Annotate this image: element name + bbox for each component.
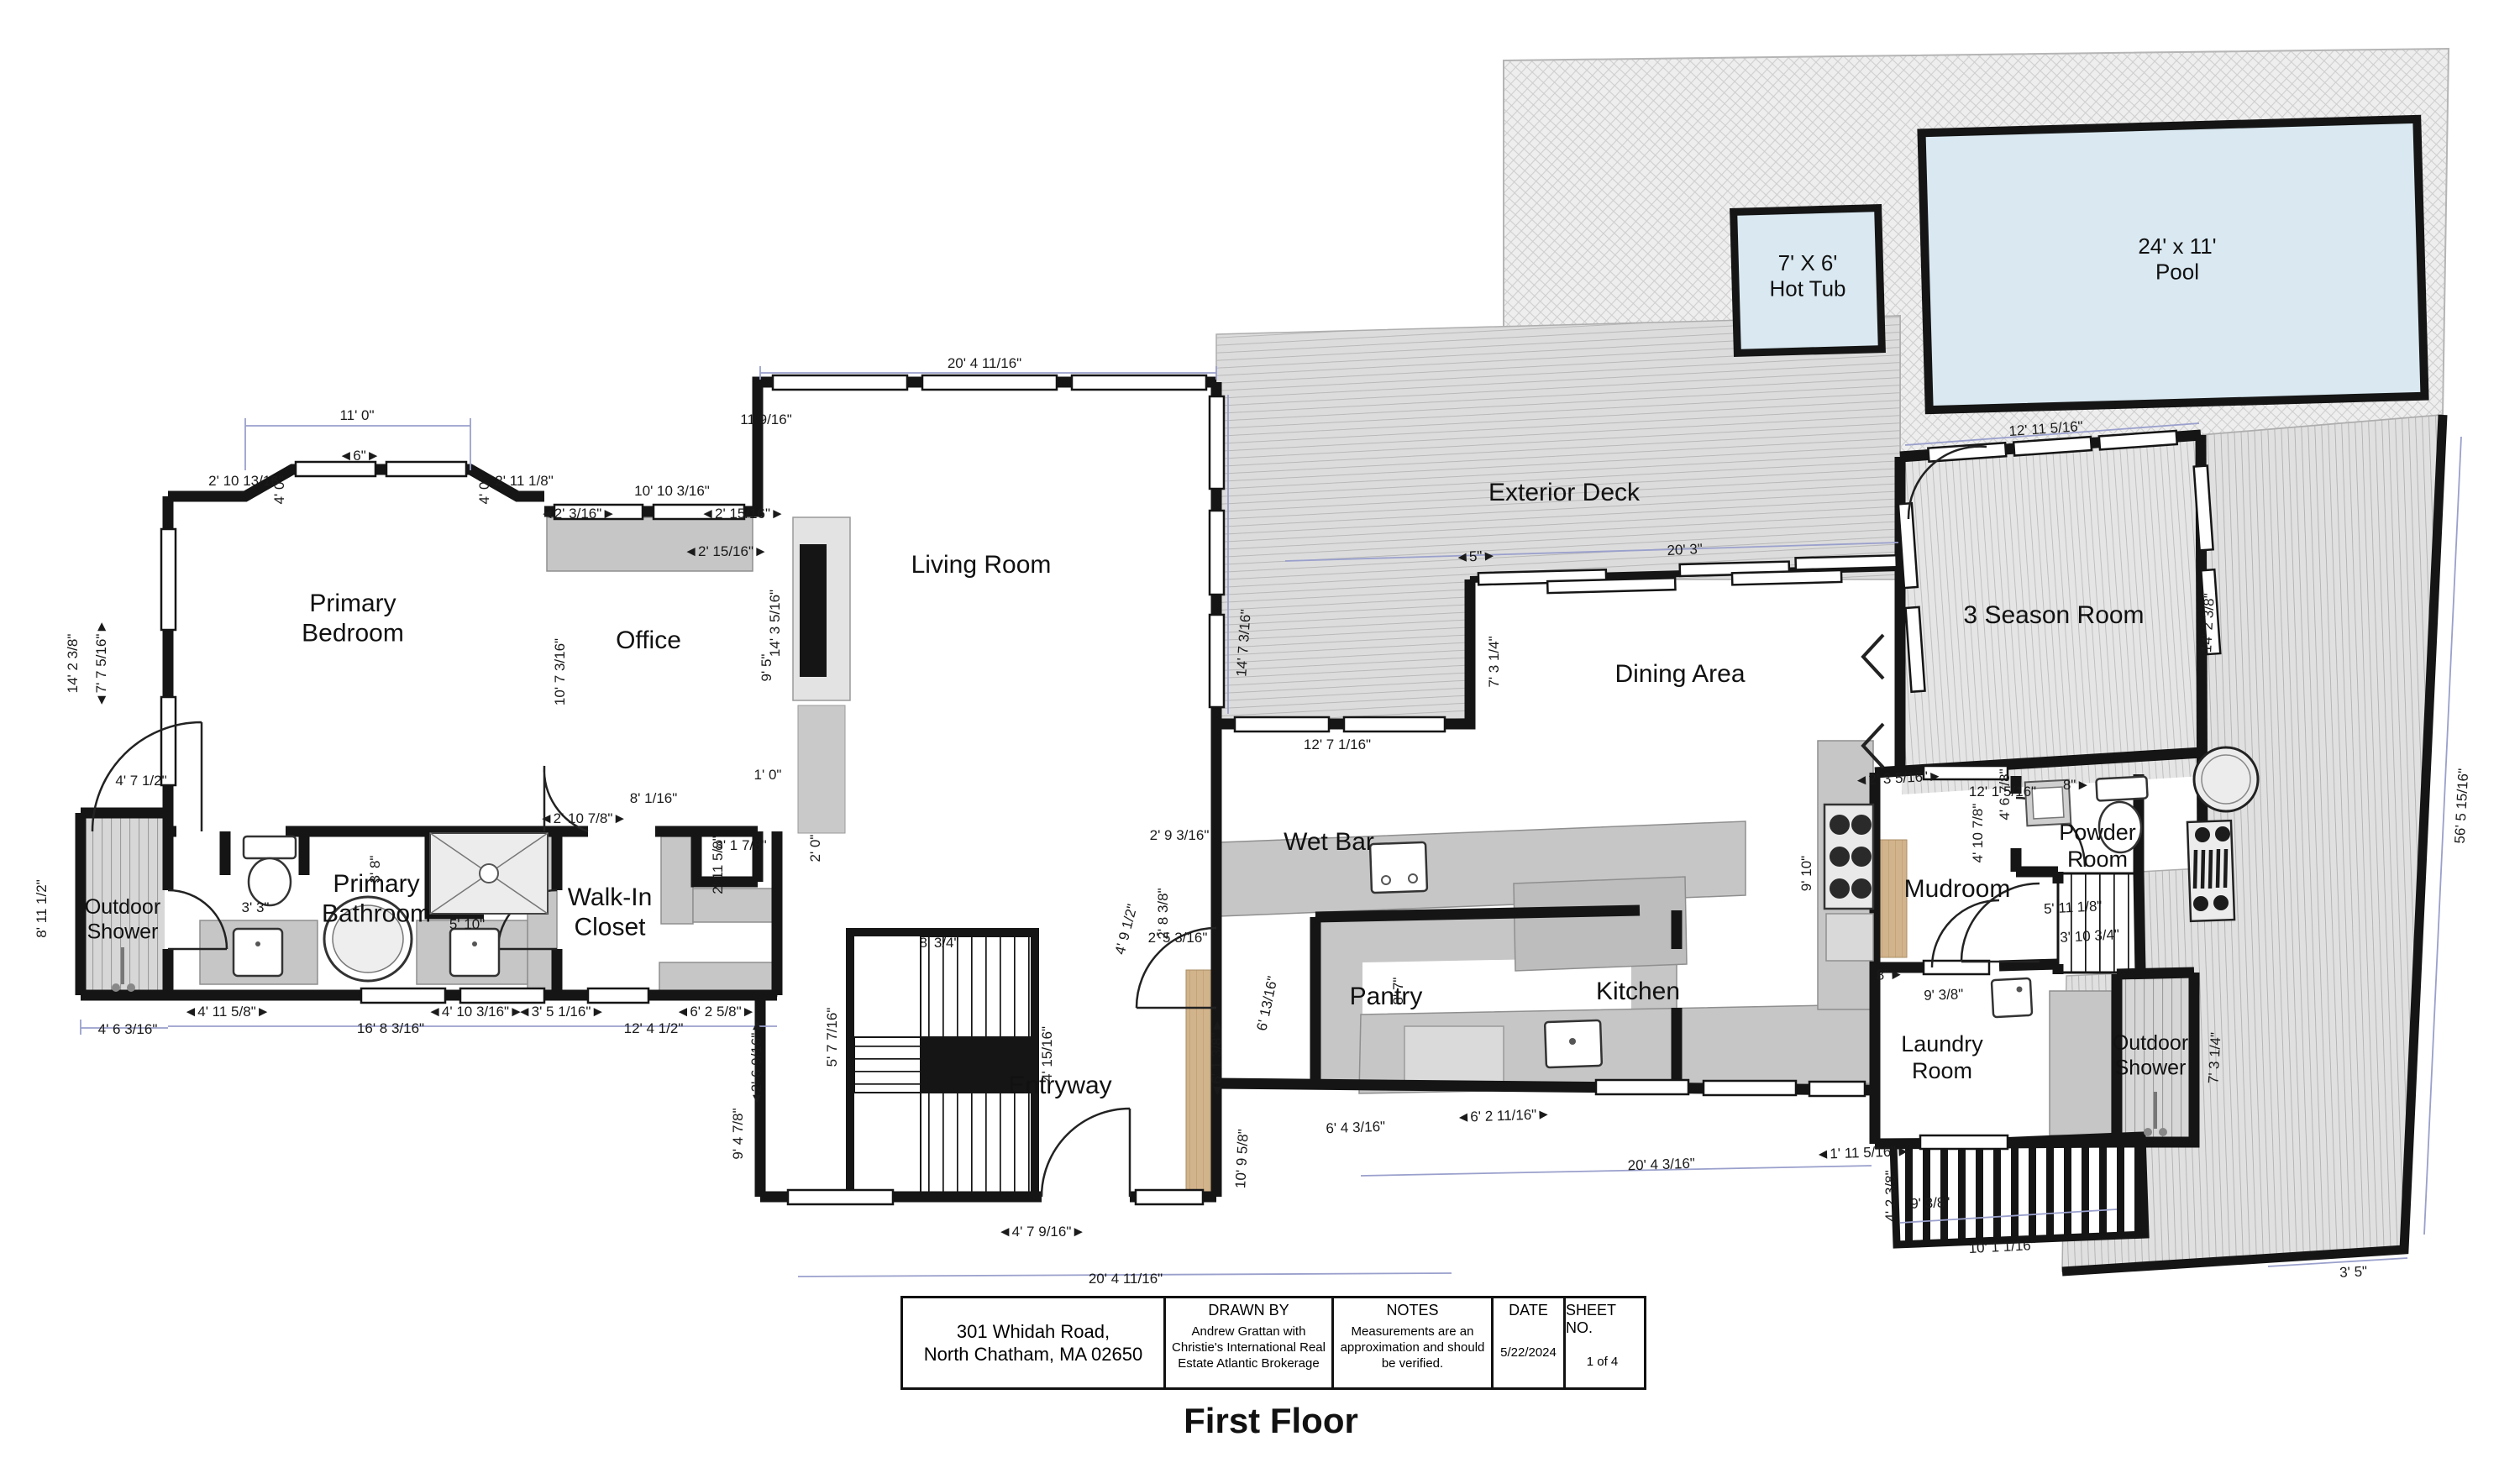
dimension-label: ◄2' 15/16"► bbox=[684, 543, 768, 559]
dimension-label: 56' 5 15/16" bbox=[2452, 768, 2472, 844]
dimension-label: 4' 7 1/2" bbox=[115, 773, 166, 789]
mudroom-bench bbox=[1878, 840, 1907, 957]
title-block-date: DATE 5/22/2024 bbox=[1491, 1298, 1563, 1387]
room-label: OutdoorShower bbox=[2113, 1031, 2188, 1080]
room-label: Walk-InCloset bbox=[568, 883, 653, 941]
dimension-label: 12' 7 1/16" bbox=[1304, 737, 1371, 752]
kitchen-sink bbox=[1545, 1020, 1602, 1067]
dimension-label: ◄4' 10 3/16"► bbox=[428, 1004, 523, 1020]
notes-text: Measurements are an approximation and sh… bbox=[1334, 1319, 1491, 1387]
dimension-label: 4' 2 3/8" bbox=[1882, 1170, 1898, 1221]
room-label: PowderRoom bbox=[2059, 820, 2136, 872]
dimension-label: 10' 7 3/16" bbox=[552, 638, 568, 705]
dimension-label: 9' 3/8" bbox=[1924, 986, 1964, 1004]
dimension-label: 9' 4 7/8" bbox=[730, 1108, 746, 1159]
floor-plan-canvas: PrimaryBedroomOfficeLiving RoomExterior … bbox=[0, 0, 2520, 1464]
date-header: DATE bbox=[1509, 1298, 1548, 1319]
floor-title: First Floor bbox=[900, 1401, 1641, 1441]
dimension-label: 20' 4 11/16" bbox=[1089, 1271, 1163, 1287]
dimension-label: 20' 4 11/16" bbox=[948, 355, 1021, 371]
title-block: 301 Whidah Road, North Chatham, MA 02650… bbox=[900, 1296, 1646, 1390]
chimney bbox=[798, 705, 845, 833]
dimension-label: ◄4' 7 9/16"► bbox=[998, 1224, 1085, 1240]
dimension-label: 2' 5 3/16" bbox=[1148, 930, 1208, 946]
dimension-label: 2' 9 3/16" bbox=[1150, 827, 1210, 843]
floor-plan-page: PrimaryBedroomOfficeLiving RoomExterior … bbox=[0, 0, 2520, 1464]
entry-staircase bbox=[850, 932, 1035, 1198]
notes-header: NOTES bbox=[1386, 1298, 1438, 1319]
title-block-notes: NOTES Measurements are an approximation … bbox=[1331, 1298, 1491, 1387]
dimension-label: ◄3' 5 1/16"► bbox=[517, 1004, 605, 1020]
room-label: 7' X 6'Hot Tub bbox=[1769, 250, 1845, 301]
dimension-label: 10' 1 1/16" bbox=[1968, 1237, 2036, 1256]
kitchen-range bbox=[1824, 805, 1873, 961]
sheet-text: 1 of 4 bbox=[1583, 1337, 1622, 1387]
fireplace-firebox bbox=[800, 544, 827, 677]
dimension-label: 4' 9 1/2" bbox=[1112, 903, 1141, 957]
dimension-label: 20' 3" bbox=[1667, 541, 1703, 558]
date-text: 5/22/2024 bbox=[1497, 1319, 1560, 1387]
dimension-label: ◄6' 1 3/8"► bbox=[1209, 1019, 1225, 1098]
dimension-label: 3' 3" bbox=[242, 899, 270, 915]
address-text: 301 Whidah Road, North Chatham, MA 02650 bbox=[924, 1320, 1142, 1366]
dimension-label: 4' 6 3/16" bbox=[98, 1021, 158, 1037]
dimension-label: 8' 3/4" bbox=[919, 935, 958, 951]
entry-door bbox=[1042, 1109, 1130, 1197]
dimension-label: 8"► bbox=[2063, 777, 2090, 793]
dimension-label: 14' 2 3/8" bbox=[65, 634, 81, 694]
dimension-label: 2' 10 13/16" bbox=[208, 473, 284, 489]
exterior-deck bbox=[1216, 316, 1900, 724]
dimension-label: ◄2' 6 9/16"► bbox=[748, 1019, 764, 1106]
closet-shelf-1 bbox=[661, 836, 693, 924]
dimension-label: 20' 4 3/16" bbox=[1627, 1156, 1695, 1174]
dimension-label: 10' 9 5/8" bbox=[1232, 1129, 1252, 1189]
room-label: 3 Season Room bbox=[1963, 601, 2144, 629]
dimension-label: ◄4' 11 5/8"► bbox=[183, 1004, 270, 1020]
dimension-label: 10' 10 3/16" bbox=[634, 483, 710, 499]
drawn-by-text: Andrew Grattan with Christie's Internati… bbox=[1166, 1319, 1331, 1387]
dimension-label: 11 9/16" bbox=[740, 412, 792, 427]
room-label: Kitchen bbox=[1596, 978, 1680, 1005]
dimension-label: 3' 10 3/4" bbox=[2060, 926, 2120, 946]
dimension-label: 14' 2 3/8" bbox=[2198, 593, 2218, 653]
dimension-label: 16' 8 3/16" bbox=[357, 1020, 424, 1036]
dimension-label: 9' 3/8" bbox=[1910, 1194, 1950, 1212]
dimension-label: ◄6' 2 11/16"► bbox=[1456, 1106, 1551, 1125]
title-block-drawn-by: DRAWN BY Andrew Grattan with Christie's … bbox=[1163, 1298, 1331, 1387]
dimension-label: 8"► bbox=[1876, 966, 1903, 983]
room-label: OutdoorShower bbox=[85, 895, 160, 944]
dimension-label: ◄2' 15/16"► bbox=[701, 506, 785, 522]
deck-rail-stairs bbox=[1893, 1135, 2145, 1245]
dimension-label: 12' 1 5/16" bbox=[1969, 784, 2036, 800]
dimension-label: 8' 1/16" bbox=[630, 790, 678, 806]
room-label: Office bbox=[616, 627, 681, 654]
dimension-label: 2' 11 1/8" bbox=[495, 473, 553, 489]
dimension-label: 7' 3 1/4" bbox=[2205, 1032, 2223, 1084]
room-label: PrimaryBedroom bbox=[302, 590, 404, 647]
sheet-header: SHEET NO. bbox=[1566, 1298, 1639, 1337]
dimension-label: 9' 10" bbox=[1798, 856, 1814, 891]
room-label: Mudroom bbox=[1904, 875, 2011, 903]
wet-bar-sink bbox=[1370, 842, 1427, 893]
dimension-label: 8' 7" bbox=[1390, 978, 1406, 1005]
dimension-label: 6' 13/16" bbox=[1253, 975, 1280, 1033]
title-block-sheet: SHEET NO. 1 of 4 bbox=[1563, 1298, 1639, 1387]
closet-shelf-2 bbox=[693, 889, 777, 922]
kitchen-island bbox=[1514, 877, 1687, 971]
dimension-label: 5' 10" bbox=[449, 916, 485, 932]
dimension-label: 14' 3 5/16" bbox=[767, 590, 783, 657]
drawn-by-header: DRAWN BY bbox=[1208, 1298, 1289, 1319]
dishwasher bbox=[1404, 1026, 1504, 1087]
room-label: LaundryRoom bbox=[1901, 1031, 1983, 1083]
deck-stairs bbox=[2058, 873, 2139, 973]
dimension-label: 3' 5" bbox=[2339, 1263, 2368, 1281]
dimension-label: 2' 11 5/8" bbox=[710, 836, 726, 894]
dimension-label: ◄7' 7 5/16"► bbox=[93, 620, 109, 707]
bath-shower bbox=[430, 833, 548, 914]
dimension-label: ◄2' 10 7/8"► bbox=[539, 810, 627, 826]
dimension-label: 4' 0" bbox=[476, 477, 492, 505]
dimension-label: 3' 8" bbox=[367, 856, 383, 883]
dimension-label: ◄2' 3/16"► bbox=[540, 506, 616, 522]
dimension-label: ◄6"► bbox=[339, 448, 380, 464]
dimension-label: 4' 15/16" bbox=[1039, 1026, 1055, 1082]
laundry-sink bbox=[1992, 978, 2032, 1017]
dimension-label: 9' 5" bbox=[759, 654, 774, 682]
room-label: Pantry bbox=[1350, 983, 1423, 1010]
dimension-label: 11' 0" bbox=[339, 407, 374, 423]
room-label: Wet Bar bbox=[1284, 828, 1374, 856]
dimension-label: 4' 10 7/8" bbox=[1970, 804, 1986, 863]
title-block-address: 301 Whidah Road, North Chatham, MA 02650 bbox=[903, 1298, 1163, 1387]
laundry-counter bbox=[2050, 991, 2112, 1135]
dimension-label: 5' 7 7/16" bbox=[824, 1008, 840, 1067]
dimension-label: 8' 11 1/2" bbox=[34, 879, 50, 937]
dimension-label: 1' 0" bbox=[754, 767, 782, 783]
dimension-label: 6' 4 3/16" bbox=[1326, 1119, 1385, 1136]
dimension-label: 5' 11 1/8" bbox=[2044, 898, 2103, 917]
room-label: Entryway bbox=[1008, 1072, 1111, 1099]
dimension-label: ◄5"► bbox=[1455, 548, 1497, 566]
dimension-label: ◄6' 2 5/8"► bbox=[676, 1004, 756, 1020]
dimension-label: 12' 4 1/2" bbox=[624, 1020, 684, 1036]
room-label: Exterior Deck bbox=[1488, 479, 1641, 506]
dimension-label: 7' 3 1/4" bbox=[1486, 636, 1502, 687]
dimension-label: 2' 0" bbox=[807, 835, 823, 862]
room-label: Dining Area bbox=[1614, 660, 1745, 688]
bath-toilet bbox=[244, 836, 296, 905]
dimension-label: ◄1' 11 5/16"► bbox=[1815, 1143, 1910, 1162]
room-label: Living Room bbox=[911, 551, 1052, 579]
